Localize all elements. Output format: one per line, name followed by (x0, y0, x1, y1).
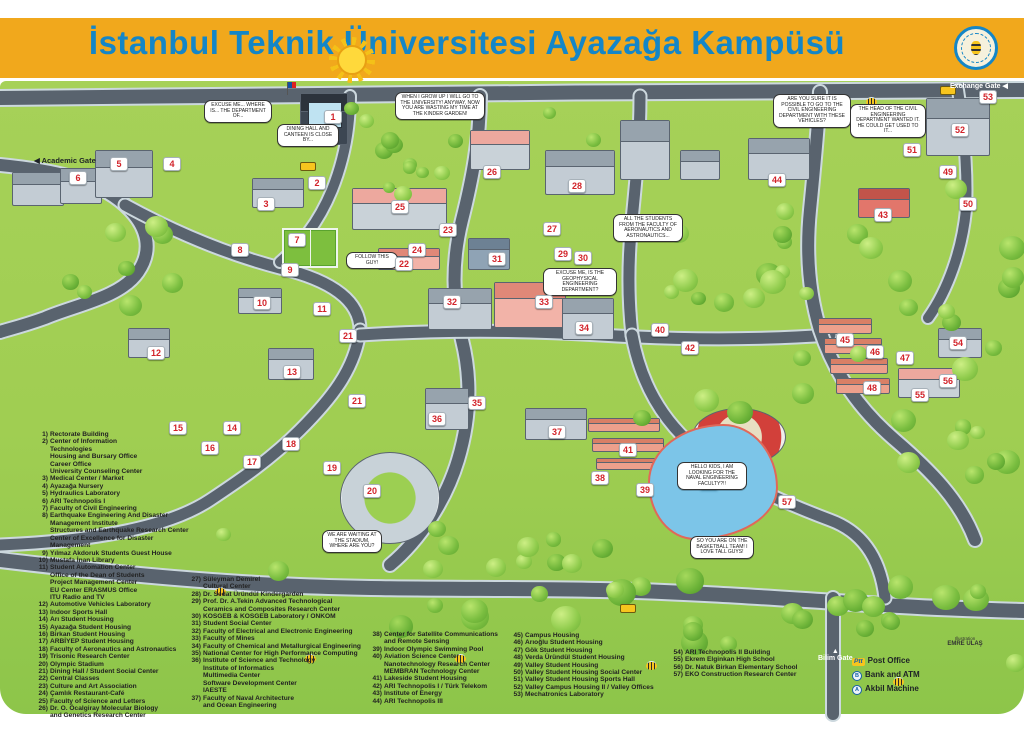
building-marker-54: 54 (949, 336, 967, 350)
legend-item: 12)Automotive Vehicles Laboratory (33, 601, 191, 608)
legend-item-text: Ayazağa Nursery (50, 483, 191, 490)
tree-icon (562, 554, 582, 573)
building-marker-43: 43 (874, 208, 892, 222)
legend-item: 27)Süleyman DemirelCultural Center (186, 576, 372, 591)
building-marker-45: 45 (836, 333, 854, 347)
legend-item-number: 56) (668, 664, 683, 671)
legend-item-text: Mechatronics Laboratory (525, 691, 674, 698)
legend-item-text: ARI Technopolis II Building (685, 649, 844, 656)
building-marker-34: 34 (575, 321, 593, 335)
legend-column-4: 45)Campus Housing46)Arıoğlu Student Hous… (508, 632, 674, 699)
legend-item: 21)Dining Hall / Student Social Center (33, 668, 191, 675)
legend-item: 41)Lakeside Student Housing (367, 675, 523, 682)
legend-item-number: 45) (508, 632, 523, 639)
building-roof (13, 173, 63, 185)
legend-item-number: 13) (33, 609, 48, 616)
legend-item: 46)Arıoğlu Student Housing (508, 639, 674, 646)
ptt-icon-badge: Ptt (852, 658, 865, 666)
legend-item-text: Medical Center / Market (50, 475, 191, 482)
campus-map-page: İstanbul Teknik Üniversitesi Ayazağa Kam… (0, 0, 1024, 734)
legend-item-number: 15) (33, 624, 48, 631)
building-marker-19: 19 (323, 461, 341, 475)
legend-item: 55)Ekrem Elginkan High School (668, 656, 844, 663)
legend-item-line: MEMBRAN Technology Center (384, 668, 523, 675)
legend-item-line: ARI Technopolis III (384, 698, 523, 705)
legend-item-text: Dr. Sedat Üründül Kindergarden (203, 591, 372, 598)
legend-item-line: Indoor Sports Hall (50, 609, 191, 616)
legend-item-text: Institute of Energy (384, 690, 523, 697)
building-marker-39: 39 (636, 483, 654, 497)
legend-item-line: Institute of Informatics (203, 665, 372, 672)
legend-item-line: Olympic Stadium (50, 661, 191, 668)
building-marker-56: 56 (939, 374, 957, 388)
tree-icon (965, 466, 984, 483)
tree-icon (423, 560, 443, 578)
legend-item: 3)Medical Center / Market (33, 475, 191, 482)
legend-item-number: 20) (33, 661, 48, 668)
tree-icon (897, 452, 920, 473)
legend-item-text: ARI Technopolis I (50, 498, 191, 505)
legend-column-2: 27)Süleyman DemirelCultural Center28)Dr.… (186, 576, 372, 709)
legend-item-text: Institute of Science and TechnologyInsti… (203, 657, 372, 694)
legend-item: 35)National Center for High Performance … (186, 650, 372, 657)
legend-item-number: 16) (33, 631, 48, 638)
legend-item-number: 37) (186, 695, 201, 710)
legend-symbol-row: BBank and ATM (852, 667, 920, 681)
credit-name: EMRE ULAŞ (945, 641, 985, 647)
legend-item-text: Mustafa İnan Library (50, 557, 191, 564)
speech-bubble: WE ARE WAITING AT THE STADIUM, WHERE ARE… (322, 530, 382, 553)
speech-bubble: WHEN I GROW UP I WILL GO TO THE UNIVERSI… (395, 92, 485, 120)
legend-item-line: Institute of Science and Technology (203, 657, 372, 664)
building-marker-52: 52 (951, 123, 969, 137)
legend-item-number: 22) (33, 675, 48, 682)
tree-icon (344, 102, 359, 116)
legend-item: 31)Student Social Center (186, 620, 372, 627)
legend-item: 51)Valley Student Housing Sports Hall (508, 676, 674, 683)
legend-item-text: Indoor Sports Hall (50, 609, 191, 616)
legend-item: 54)ARI Technopolis II Building (668, 649, 844, 656)
tree-icon (1002, 267, 1024, 287)
building (680, 150, 720, 180)
tree-icon (970, 426, 984, 439)
tree-icon (162, 273, 183, 293)
legend-item-line: Ayazağa Student Housing (50, 624, 191, 631)
tree-icon (888, 270, 912, 292)
legend-item: 57)EKO Construction Research Center (668, 671, 844, 678)
tree-icon (760, 270, 786, 294)
tree-icon (883, 614, 900, 630)
tree-icon (792, 383, 814, 403)
speech-bubble: THE HEAD OF THE CIVIL ENGINEERING DEPART… (850, 104, 926, 138)
building-marker-42: 42 (681, 341, 699, 355)
legend-item: 22)Central Classes (33, 675, 191, 682)
legend-item-number: 42) (367, 683, 382, 690)
legend-item-number: 57) (668, 671, 683, 678)
legend-item-line: Valley Student Housing Social Center (525, 669, 674, 676)
speech-bubble: FOLLOW THIS GUY! (346, 252, 398, 269)
legend-item: 28)Dr. Sedat Üründül Kindergarden (186, 591, 372, 598)
building-marker-20: 20 (363, 484, 381, 498)
legend-item: 19)Trisonic Research Center (33, 653, 191, 660)
legend-item-number: 7) (33, 505, 48, 512)
building-marker-35: 35 (468, 396, 486, 410)
legend-item-number: 33) (186, 635, 201, 642)
legend-item-number: 26) (33, 705, 48, 720)
legend-item: 26)Dr. O. Öcalgiray Molecular Biologyand… (33, 705, 191, 720)
legend-item-number: 23) (33, 683, 48, 690)
legend-item-number: 24) (33, 690, 48, 697)
tree-icon (691, 292, 705, 305)
legend-item-number: 9) (33, 550, 48, 557)
legend-item-text: Campus Housing (525, 632, 674, 639)
legend-item: 48)Verda Üründül Student Housing (508, 654, 674, 661)
speech-bubble: SO YOU ARE ON THE BASKETBALL TEAM! I LOV… (690, 536, 754, 559)
legend-item-line: Valley Campus Housing II / Valley Office… (525, 684, 674, 691)
building-marker-11: 11 (313, 302, 331, 316)
sun-icon (329, 37, 375, 83)
legend-item-text: Arıoğlu Student Housing (525, 639, 674, 646)
building-marker-53: 53 (979, 90, 997, 104)
legend-item: 52)Valley Campus Housing II / Valley Off… (508, 684, 674, 691)
legend-item-number: 47) (508, 647, 523, 654)
building-marker-31: 31 (488, 252, 506, 266)
tree-icon (461, 599, 488, 624)
legend-item-text: Valley Student Housing Sports Hall (525, 676, 674, 683)
building-marker-25: 25 (391, 200, 409, 214)
legend-item-line: Valley Student Housing Sports Hall (525, 676, 674, 683)
building-roof (469, 239, 509, 250)
legend-item-number: 55) (668, 656, 683, 663)
building-marker-36: 36 (428, 412, 446, 426)
legend-item: 37)Faculty of Naval Architectureand Ocea… (186, 695, 372, 710)
legend-item-text: Center for Satellite Communicationsand R… (384, 631, 523, 646)
legend-item-number: 3) (33, 475, 48, 482)
legend-item-line: Student Social Center (203, 620, 372, 627)
legend-item-line: Faculty of Civil Engineering (50, 505, 191, 512)
legend-item: 15)Ayazağa Student Housing (33, 624, 191, 631)
legend-item-line: Structures and Earthquake Research Cente… (50, 527, 191, 534)
speech-bubble: ARE YOU SURE IT IS POSSIBLE TO GO TO THE… (773, 94, 851, 128)
building (620, 120, 670, 180)
legend-item-number: 32) (186, 628, 201, 635)
legend-item: 18)Faculty of Aeronautics and Astronauti… (33, 646, 191, 653)
building (470, 130, 530, 170)
legend-item-text: Faculty of Aeronautics and Astronautics (50, 646, 191, 653)
legend-item-line: Faculty of Aeronautics and Astronautics (50, 646, 191, 653)
building (428, 288, 492, 330)
legend-item: 56)Dr. Natuk Birkan Elementary School (668, 664, 844, 671)
tree-icon (427, 598, 443, 613)
tree-icon (383, 182, 395, 193)
legend-column-5: 54)ARI Technopolis II Building55)Ekrem E… (668, 649, 844, 679)
building-marker-14: 14 (223, 421, 241, 435)
legend-item-text: Valley Student Housing Social Center (525, 669, 674, 676)
legend-item-line: Faculty of Electrical and Electronic Eng… (203, 628, 372, 635)
legend-item-number: 1) (33, 431, 48, 438)
legend-item-line: Project Management Center (50, 579, 191, 586)
building-marker-37: 37 (548, 425, 566, 439)
legend-item-line: Campus Housing (525, 632, 674, 639)
tree-icon (859, 237, 883, 259)
tree-icon (727, 401, 753, 425)
legend-item-line: Trisonic Research Center (50, 653, 191, 660)
legend-symbol-row: AAkbil Machine (852, 681, 920, 695)
legend-item-text: ARI Technopolis III (384, 698, 523, 705)
legend-item-line: Faculty of Science and Letters (50, 698, 191, 705)
legend-item-line: Housing and Bursary Office (50, 453, 191, 460)
legend-item-line: and Remote Sensing (384, 638, 523, 645)
legend-item: 30)KOSGEB & KOSGEB Laboratory / ONKOM (186, 613, 372, 620)
legend-item-number: 10) (33, 557, 48, 564)
building-roof (269, 349, 313, 360)
legend-item: 10)Mustafa İnan Library (33, 557, 191, 564)
speech-bubble: DINING HALL AND CANTEEN IS CLOSE BY... (277, 124, 339, 147)
legend-item: 7)Faculty of Civil Engineering (33, 505, 191, 512)
legend-item-line: Institute of Energy (384, 690, 523, 697)
legend-item-line: Dr. Natuk Birkan Elementary School (685, 664, 844, 671)
legend-item-text: Ekrem Elginkan High School (685, 656, 844, 663)
legend-item-number: 53) (508, 691, 523, 698)
legend-item-text: Rectorate Building (50, 431, 191, 438)
legend-item: 44)ARI Technopolis III (367, 698, 523, 705)
legend-item-line: ARI Technopolis I / Türk Telekom (384, 683, 523, 690)
legend-item-line: Center of Excellence for Disaster Manage… (50, 535, 191, 550)
legend-item-text: Valley Campus Housing II / Valley Office… (525, 684, 674, 691)
legend-item-text: Arı Student Housing (50, 616, 191, 623)
legend-item: 36)Institute of Science and TechnologyIn… (186, 657, 372, 694)
legend-item: 50)Valley Student Housing Social Center (508, 669, 674, 676)
legend-item-number: 49) (508, 662, 523, 669)
legend-item: 23)Culture and Art Association (33, 683, 191, 690)
legend-item-number: 27) (186, 576, 201, 591)
legend-item-line: Medical Center / Market (50, 475, 191, 482)
legend-item-line: Lakeside Student Housing (384, 675, 523, 682)
building-marker-49: 49 (939, 165, 957, 179)
building-marker-33: 33 (535, 295, 553, 309)
tree-icon (792, 610, 813, 630)
legend-item-number: 11) (33, 564, 48, 601)
legend-item-number: 51) (508, 676, 523, 683)
legend-item-line: Valley Student Housing (525, 662, 674, 669)
legend-item-line: Rectorate Building (50, 431, 191, 438)
legend-item-line: Center for Satellite Communications (384, 631, 523, 638)
tree-icon (546, 532, 561, 546)
building-roof (819, 319, 871, 325)
legend-item-line: ARBİYEP Student Housing (50, 638, 191, 645)
legend-item-text: Central Classes (50, 675, 191, 682)
legend-item: 32)Faculty of Electrical and Electronic … (186, 628, 372, 635)
tree-icon (486, 558, 506, 577)
legend-item-line: Central Classes (50, 675, 191, 682)
legend-item-number: 39) (367, 646, 382, 653)
legend-item-text: Olympic Stadium (50, 661, 191, 668)
building-roof (621, 121, 669, 142)
legend-item-number: 14) (33, 616, 48, 623)
tree-icon (543, 107, 556, 119)
legend-item: 14)Arı Student Housing (33, 616, 191, 623)
legend-item-text: Automotive Vehicles Laboratory (50, 601, 191, 608)
legend-item: 45)Campus Housing (508, 632, 674, 639)
legend-item: 4)Ayazağa Nursery (33, 483, 191, 490)
building-marker-41: 41 (619, 443, 637, 457)
legend-item-line: National Center for High Performance Com… (203, 650, 372, 657)
building-marker-8: 8 (231, 243, 249, 257)
legend-symbols: PttPost OfficeBBank and ATMAAkbil Machin… (852, 653, 920, 695)
legend-item-line: Earthquake Engineering And Disaster (50, 512, 191, 519)
legend-item-number: 29) (186, 598, 201, 613)
tree-icon (438, 536, 459, 556)
legend-item-text: Student Social Center (203, 620, 372, 627)
tree-icon (985, 340, 1002, 356)
legend-item-text: Trisonic Research Center (50, 653, 191, 660)
itu-seal-logo (954, 26, 998, 70)
legend-item-line: Faculty of Chemical and Metallurgical En… (203, 643, 372, 650)
legend-item-number: 36) (186, 657, 201, 694)
building-marker-40: 40 (651, 323, 669, 337)
legend-item-text: Earthquake Engineering And DisasterManag… (50, 512, 191, 549)
legend-item-line: Arı Student Housing (50, 616, 191, 623)
legend-item-text: Center of InformationTechnologiesHousing… (50, 438, 191, 475)
legend-item-line: ARI Technopolis II Building (685, 649, 844, 656)
legend-item-line: ITU Radio and TV (50, 594, 191, 601)
legend-symbol-label: Post Office (868, 654, 910, 667)
legend-item-line: Management Institute (50, 520, 191, 527)
building-marker-7: 7 (288, 233, 306, 247)
legend-item-text: Faculty of Science and Letters (50, 698, 191, 705)
speech-bubble: EXCUSE ME, IS THE GEOPHYSICAL ENGINEERIN… (543, 268, 617, 296)
building-roof (426, 389, 468, 404)
legend-item: 25)Faculty of Science and Letters (33, 698, 191, 705)
tree-icon (216, 528, 231, 541)
building-marker-16: 16 (201, 441, 219, 455)
building-marker-5: 5 (110, 157, 128, 171)
legend-item-text: Dr. O. Öcalgiray Molecular Biologyand Ge… (50, 705, 191, 720)
legend-item-text: Faculty of Electrical and Electronic Eng… (203, 628, 372, 635)
legend-item-line: Ceramics and Composites Research Center (203, 606, 372, 613)
legend-item-number: 18) (33, 646, 48, 653)
building-marker-18: 18 (282, 437, 300, 451)
legend-item: 17)ARBİYEP Student Housing (33, 638, 191, 645)
legend-item-number: 25) (33, 698, 48, 705)
tree-icon (850, 346, 867, 362)
legend-symbol-label: Bank and ATM (865, 668, 920, 681)
legend-item-number: 54) (668, 649, 683, 656)
legend-item-text: Student Automation CenterOffice of the D… (50, 564, 191, 601)
building-roof (681, 151, 719, 162)
legend-item-line: Mechatronics Laboratory (525, 691, 674, 698)
building-roof (859, 189, 909, 200)
legend-item: 29)Prof. Dr. A.Tekin Advanced Technologi… (186, 598, 372, 613)
building-roof (129, 329, 169, 340)
legend-symbol-row: PttPost Office (852, 653, 920, 667)
legend-item-text: ARI Technopolis I / Türk Telekom (384, 683, 523, 690)
legend-item: 13)Indoor Sports Hall (33, 609, 191, 616)
legend-item-line: Mustafa İnan Library (50, 557, 191, 564)
legend-item-line: EKO Construction Research Center (685, 671, 844, 678)
building-marker-13: 13 (283, 365, 301, 379)
building-marker-17: 17 (243, 455, 261, 469)
tree-icon (428, 521, 446, 537)
legend-column-3: 38)Center for Satellite Communicationsan… (367, 631, 523, 705)
legend-item-number: 38) (367, 631, 382, 646)
legend-item-line: Ekrem Elginkan High School (685, 656, 844, 663)
legend-item-text: Süleyman DemirelCultural Center (203, 576, 372, 591)
building-roof (526, 409, 586, 420)
tree-icon (776, 203, 794, 220)
legend-item-line: Office of the Dean of Students (50, 572, 191, 579)
tree-icon (888, 575, 914, 599)
tree-icon (403, 161, 416, 173)
legend-item-text: Faculty of Mines (203, 635, 372, 642)
tree-icon (932, 585, 960, 611)
legend-item: 42)ARI Technopolis I / Türk Telekom (367, 683, 523, 690)
legend-item-text: Indoor Olympic Swimming Pool (384, 646, 523, 653)
tree-icon (676, 568, 703, 593)
legend-item-text: Hydraulics Laboratory (50, 490, 191, 497)
legend-item: 43)Institute of Energy (367, 690, 523, 697)
legend-item-line: and Genetics Research Center (50, 712, 191, 719)
building (12, 172, 64, 206)
legend-item-line: Software Development Center (203, 680, 372, 687)
legend-item-number: 6) (33, 498, 48, 505)
legend-item-line: Yılmaz Akdoruk Students Guest House (50, 550, 191, 557)
legend-item: 6)ARI Technopolis I (33, 498, 191, 505)
legend-item-line: Career Office (50, 461, 191, 468)
building-roof (563, 299, 613, 314)
tree-icon (62, 274, 79, 290)
legend-item-number: 2) (33, 438, 48, 475)
legend-item-number: 43) (367, 690, 382, 697)
building-marker-12: 12 (147, 346, 165, 360)
building-marker-4: 4 (163, 157, 181, 171)
building-marker-24: 24 (408, 243, 426, 257)
tree-icon (899, 299, 918, 316)
building-marker-44: 44 (768, 173, 786, 187)
legend-item-line: Culture and Art Association (50, 683, 191, 690)
legend-item-line: Dining Hall / Student Social Center (50, 668, 191, 675)
building-marker-22: 22 (395, 257, 413, 271)
tree-icon (793, 350, 811, 367)
legend-item: 5)Hydraulics Laboratory (33, 490, 191, 497)
legend-item: 49)Valley Student Housing (508, 662, 674, 669)
building-roof (471, 131, 529, 145)
legend-item-number: 31) (186, 620, 201, 627)
legend-column-1: 1)Rectorate Building2)Center of Informat… (33, 431, 191, 720)
legend-item: 33)Faculty of Mines (186, 635, 372, 642)
akbil-icon: A (852, 682, 862, 695)
legend-item-text: Dining Hall / Student Social Center (50, 668, 191, 675)
legend-item-line: Automotive Vehicles Laboratory (50, 601, 191, 608)
taxi-car (300, 162, 316, 171)
legend-item-line: EU Center ERASMUS Office (50, 587, 191, 594)
legend-item: 40)Aviation Science CenterNanotechnology… (367, 653, 523, 675)
building-marker-51: 51 (903, 143, 921, 157)
building-marker-47: 47 (896, 351, 914, 365)
legend-item-text: National Center for High Performance Com… (203, 650, 372, 657)
legend-item-line: Faculty of Naval Architecture (203, 695, 372, 702)
building-marker-1: 1 (324, 110, 342, 124)
speech-bubble: ALL THE STUDENTS FROM THE FACULTY OF AER… (613, 214, 683, 242)
legend-item: 11)Student Automation CenterOffice of th… (33, 564, 191, 601)
building-marker-48: 48 (863, 381, 881, 395)
taxi-car (620, 604, 636, 613)
building-marker-21: 21 (348, 394, 366, 408)
legend-item-number: 41) (367, 675, 382, 682)
building-marker-2: 2 (308, 176, 326, 190)
legend-item-text: Çamlık Restaurant-Café (50, 690, 191, 697)
legend-item-text: Faculty of Chemical and Metallurgical En… (203, 643, 372, 650)
